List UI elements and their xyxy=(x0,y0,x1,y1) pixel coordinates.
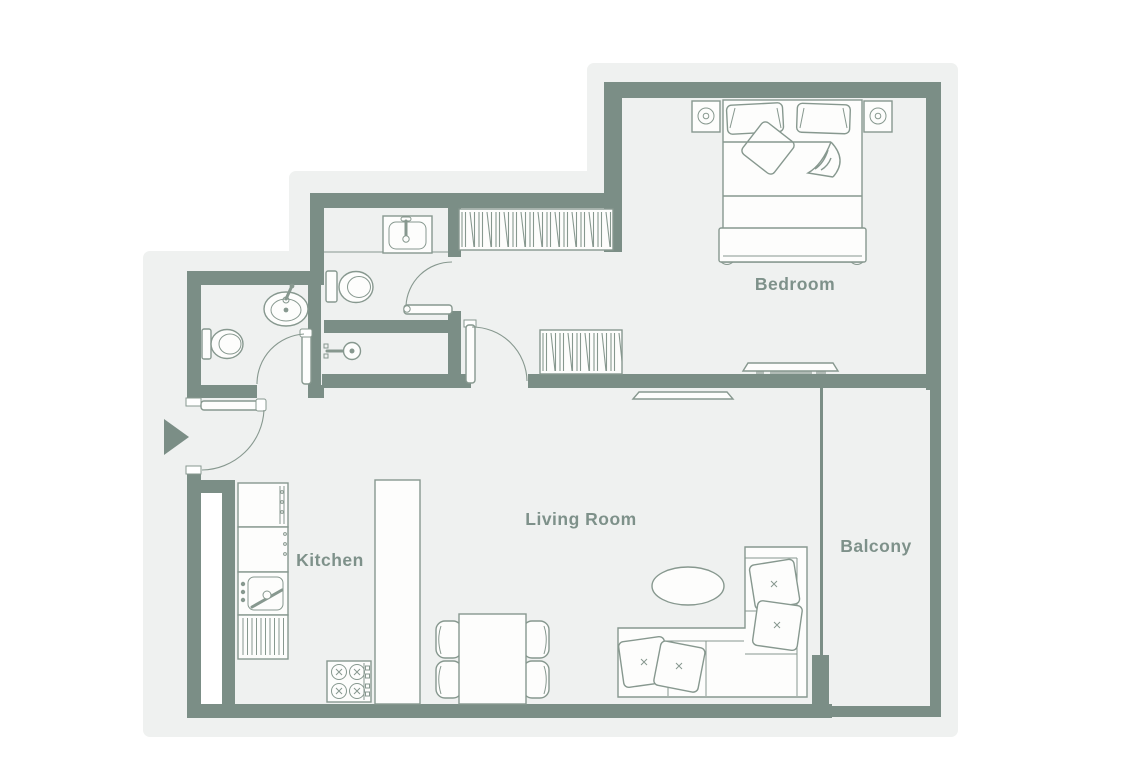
entry-door-panel xyxy=(201,401,265,410)
room-label-kitchen: Kitchen xyxy=(296,550,364,570)
dining-chair-bottom-left xyxy=(436,661,462,698)
ensuite-toilet-tank xyxy=(326,271,337,302)
guest-bath-door-panel xyxy=(302,332,311,384)
kitchen-faucet-joint xyxy=(263,591,271,599)
bedroom-console xyxy=(743,363,838,371)
wall-shaft-top xyxy=(201,480,235,493)
wall-balcony-bottom xyxy=(830,706,941,717)
entry-jamb-top xyxy=(186,398,201,406)
balcony-glazing xyxy=(820,388,823,658)
wall-shower-screen xyxy=(324,320,448,333)
room-label-bedroom: Bedroom xyxy=(755,274,835,294)
ensuite-faucet-head xyxy=(403,236,409,242)
guest-basin-drain xyxy=(284,308,289,313)
wall-balcony-right xyxy=(930,390,941,706)
sink-knob-2 xyxy=(241,590,245,594)
ensuite-door-panel xyxy=(404,305,452,314)
guest-faucet-head xyxy=(290,284,295,289)
sink-knob-1 xyxy=(241,582,245,586)
sink-knob-3 xyxy=(241,598,245,602)
living-console xyxy=(633,392,733,399)
dining-chair-top-right xyxy=(523,621,549,658)
wall-ensuite-right-lower xyxy=(448,311,461,374)
nightstand-left xyxy=(692,101,720,132)
floor-plan: Bedroom Living Room Kitchen Balcony xyxy=(0,0,1122,762)
nightstand-right xyxy=(864,101,892,132)
wall-guest-bath-bottom-right xyxy=(308,385,324,398)
dining-table xyxy=(459,614,526,704)
wall-shaft-right xyxy=(222,493,235,704)
shower-head-dot xyxy=(350,349,355,354)
living-door-panel xyxy=(466,325,475,383)
room-label-balcony: Balcony xyxy=(840,536,912,556)
entry-door-cap xyxy=(256,399,266,411)
coffee-table xyxy=(652,567,724,605)
wall-left-upper xyxy=(187,271,201,402)
bed-pillow-right xyxy=(796,103,850,134)
wall-living-bedroom-divider xyxy=(528,374,941,388)
ensuite-door-hinge xyxy=(404,306,410,312)
wall-guest-bath-bottom-left xyxy=(187,385,257,398)
ensuite-toilet xyxy=(339,272,373,303)
wall-left-lower xyxy=(187,470,201,718)
wardrobe-lower-hangers xyxy=(540,330,622,374)
dining-chair-bottom-right xyxy=(523,661,549,698)
wall-balcony-corner xyxy=(812,655,829,718)
blanket-band xyxy=(719,228,866,262)
wall-bottom xyxy=(187,704,832,718)
guest-bath-door-cap xyxy=(300,329,312,337)
wall-hall-top xyxy=(310,193,622,208)
wall-bedroom-right xyxy=(926,82,941,390)
shaft-interior xyxy=(201,493,222,704)
wardrobe-upper-hangers xyxy=(459,209,613,250)
kitchen-island xyxy=(375,480,420,704)
wall-guest-bath-top xyxy=(187,271,324,285)
wall-bedroom-top xyxy=(604,82,941,98)
wall-hall-bottom-left xyxy=(322,374,471,388)
guest-toilet-tank xyxy=(202,329,211,359)
kitchen-cabinet xyxy=(238,527,288,572)
entry-jamb-bottom xyxy=(186,466,201,474)
floor-plan-page: Bedroom Living Room Kitchen Balcony xyxy=(0,0,1122,762)
dishwasher xyxy=(238,615,288,659)
dining-chair-top-left xyxy=(436,621,462,658)
room-label-living-room: Living Room xyxy=(525,509,636,529)
